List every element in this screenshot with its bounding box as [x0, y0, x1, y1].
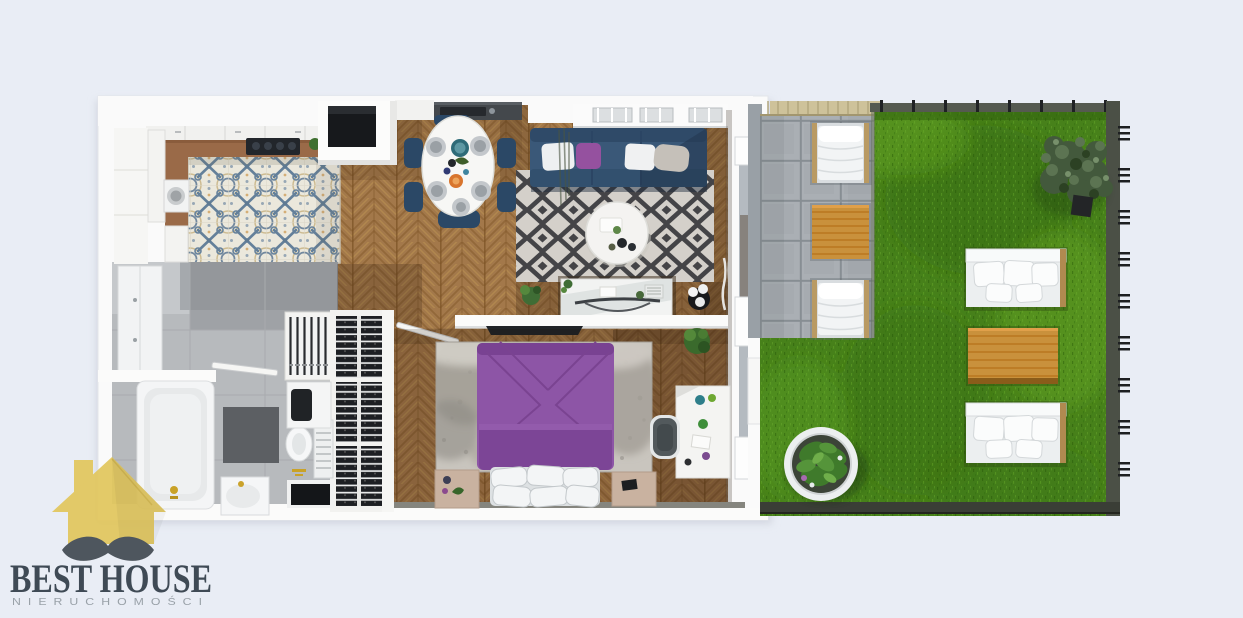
svg-text:BEST HOUSE: BEST HOUSE	[10, 556, 212, 601]
svg-text:NIERUCHOMOŚCI: NIERUCHOMOŚCI	[12, 595, 209, 608]
